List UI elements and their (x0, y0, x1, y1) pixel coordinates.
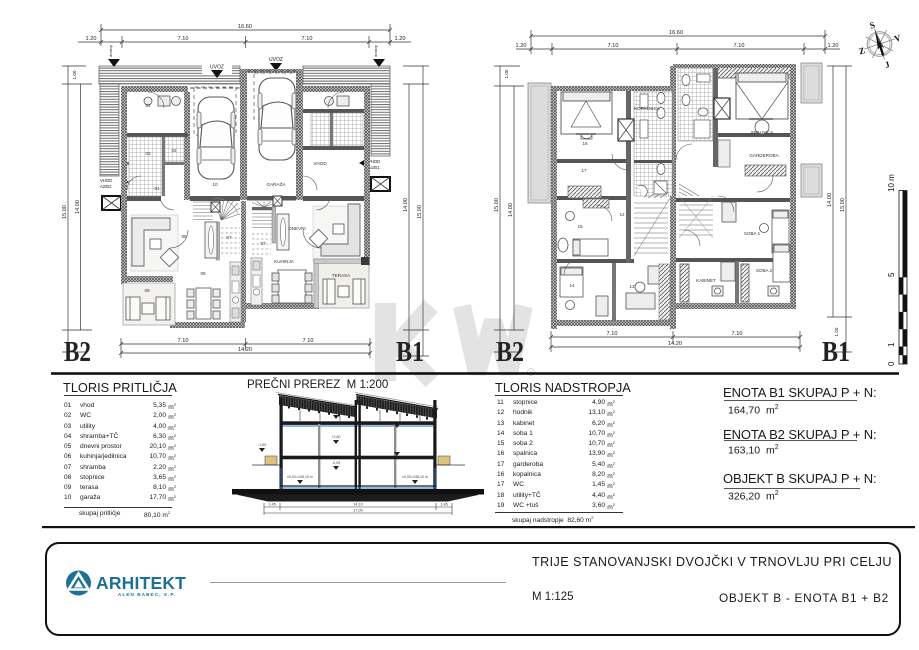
svg-text:14,10: 14,10 (353, 503, 363, 507)
svg-text:B1: B1 (396, 337, 424, 368)
svg-text:15.00: 15.00 (62, 205, 68, 219)
svg-text:7.10: 7.10 (734, 43, 745, 49)
svg-text:A2/B2: A2/B2 (100, 184, 112, 189)
svg-text:14: 14 (569, 283, 575, 288)
svg-text:7.10: 7.10 (178, 338, 189, 344)
svg-text:1,45: 1,45 (440, 503, 447, 507)
svg-text:04: 04 (145, 103, 151, 108)
svg-text:+5,70: +5,70 (331, 411, 340, 415)
svg-text:07: 07 (260, 241, 266, 246)
svg-text:B1: B1 (822, 337, 850, 368)
svg-text:1: 1 (887, 342, 896, 347)
svg-text:7.10: 7.10 (607, 331, 618, 337)
svg-text:GARAŽA: GARAŽA (267, 180, 287, 187)
svg-text:14.20: 14.20 (668, 341, 682, 347)
svg-text:17: 17 (581, 168, 587, 173)
svg-text:TERASA: TERASA (332, 273, 351, 278)
svg-text:GARDEROBA: GARDEROBA (749, 153, 779, 158)
svg-text:14.00: 14.00 (508, 203, 514, 217)
svg-text:B2: B2 (64, 337, 91, 368)
svg-text:03: 03 (145, 151, 151, 156)
svg-text:06: 06 (200, 271, 206, 276)
svg-text:15.00: 15.00 (494, 198, 500, 212)
svg-text:1,45: 1,45 (268, 503, 275, 507)
svg-text:dostop: dostop (373, 44, 378, 57)
svg-text:07: 07 (226, 235, 232, 240)
svg-text:01: 01 (154, 186, 160, 191)
svg-text:13: 13 (629, 284, 635, 289)
svg-text:05: 05 (181, 234, 187, 239)
svg-text:KABINET: KABINET (696, 278, 716, 283)
svg-text:7.10: 7.10 (178, 36, 189, 42)
svg-text:10 m: 10 m (887, 174, 896, 192)
svg-text:10: 10 (212, 182, 218, 187)
svg-text:7.10: 7.10 (732, 331, 743, 337)
svg-text:16.60: 16.60 (669, 30, 683, 36)
svg-text:16.60: 16.60 (238, 24, 252, 30)
svg-text:7.10: 7.10 (303, 338, 314, 344)
svg-text:09: 09 (144, 288, 150, 293)
svg-text:1.20: 1.20 (395, 36, 406, 42)
svg-text:Z: Z (857, 45, 866, 56)
svg-text:dostop: dostop (108, 44, 113, 57)
svg-text:7.10: 7.10 (302, 36, 313, 42)
svg-text:15.00: 15.00 (417, 205, 423, 219)
svg-text:15.00: 15.00 (840, 198, 846, 212)
svg-text:1.00: 1.00 (504, 69, 509, 78)
svg-text:V: V (893, 32, 903, 44)
svg-text:VHOD: VHOD (100, 178, 112, 183)
svg-text:-0,05: -0,05 (332, 461, 340, 465)
svg-text:±0,00=248,10 m: ±0,00=248,10 m (402, 475, 428, 479)
svg-text:UVOZ: UVOZ (269, 57, 283, 63)
svg-text:ARHITEKT: ARHITEKT (96, 573, 186, 593)
svg-text:02: 02 (171, 148, 177, 153)
svg-text:14.00: 14.00 (75, 200, 81, 214)
svg-text:1.20: 1.20 (516, 43, 527, 49)
svg-text:14.00: 14.00 (827, 193, 833, 207)
svg-text:VHOD: VHOD (313, 161, 327, 166)
svg-text:7.10: 7.10 (608, 43, 619, 49)
svg-text:16: 16 (582, 141, 588, 146)
svg-text:1.20: 1.20 (86, 36, 97, 42)
svg-text:14.00: 14.00 (403, 198, 409, 212)
svg-text:KOPALNICA: KOPALNICA (634, 106, 661, 111)
svg-text:J: J (884, 59, 892, 70)
svg-text:0: 0 (887, 361, 896, 366)
svg-text:1.20: 1.20 (828, 43, 839, 49)
svg-text:DNEVNI: DNEVNI (288, 226, 305, 231)
svg-text:17,00: 17,00 (353, 509, 363, 513)
svg-text:1.00: 1.00 (72, 70, 77, 79)
svg-text:KUHINJA: KUHINJA (274, 259, 295, 264)
svg-text:-1,50: -1,50 (258, 443, 266, 447)
svg-text:SPALNICA: SPALNICA (751, 130, 774, 135)
svg-text:±0,00=248,10 m: ±0,00=248,10 m (287, 475, 313, 479)
svg-text:SOBA 1: SOBA 1 (744, 231, 761, 236)
svg-text:15: 15 (577, 224, 583, 229)
svg-text:S: S (868, 20, 876, 31)
svg-text:SOBA 2: SOBA 2 (756, 268, 773, 273)
svg-text:ALEN BABEC, S.P.: ALEN BABEC, S.P. (118, 592, 176, 597)
svg-text:12: 12 (619, 212, 625, 217)
svg-text:14.20: 14.20 (238, 347, 252, 353)
svg-text:1.00: 1.00 (834, 327, 839, 336)
svg-text:B2: B2 (496, 337, 524, 368)
svg-text:5: 5 (887, 272, 896, 277)
svg-text:UVOZ: UVOZ (210, 65, 224, 71)
svg-text:+2,80: +2,80 (331, 435, 340, 439)
